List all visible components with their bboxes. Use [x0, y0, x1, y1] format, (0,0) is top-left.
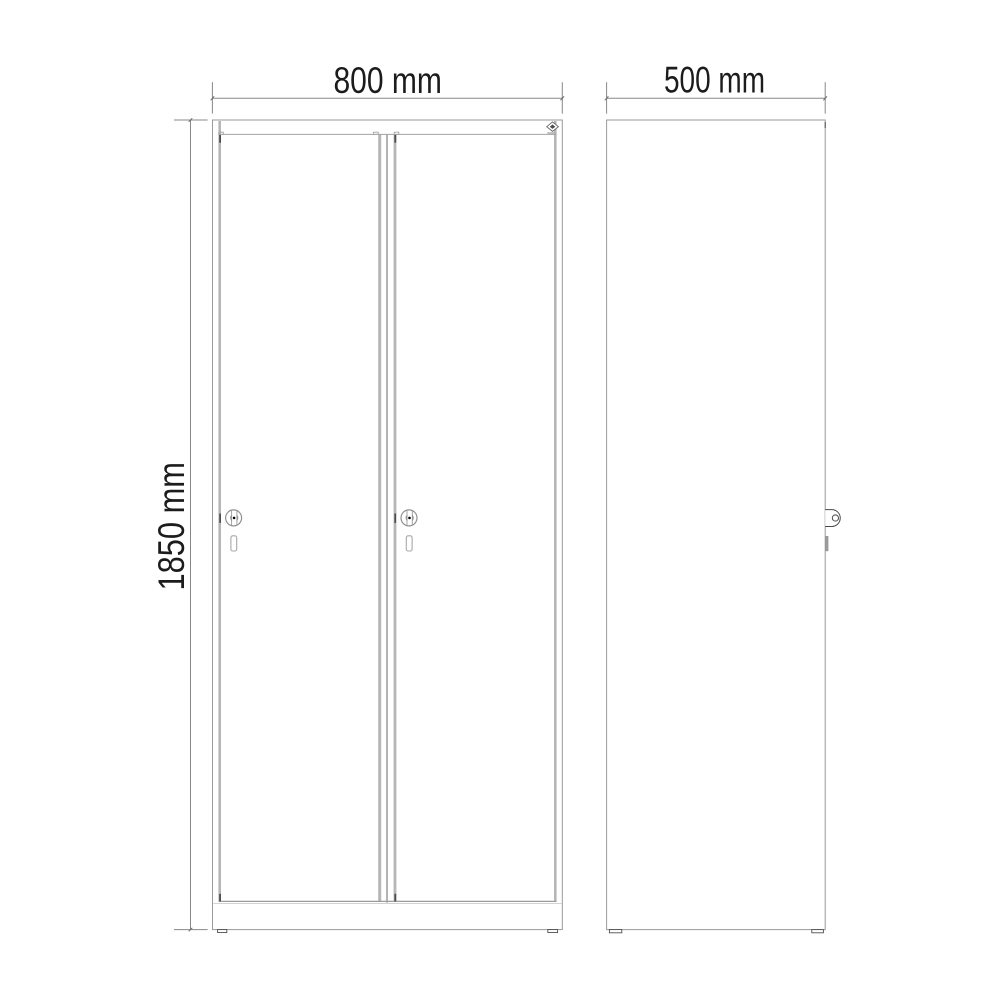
svg-text:1850 mm: 1850 mm: [151, 462, 192, 591]
svg-text:800 mm: 800 mm: [333, 60, 442, 101]
svg-text:500 mm: 500 mm: [664, 60, 765, 101]
